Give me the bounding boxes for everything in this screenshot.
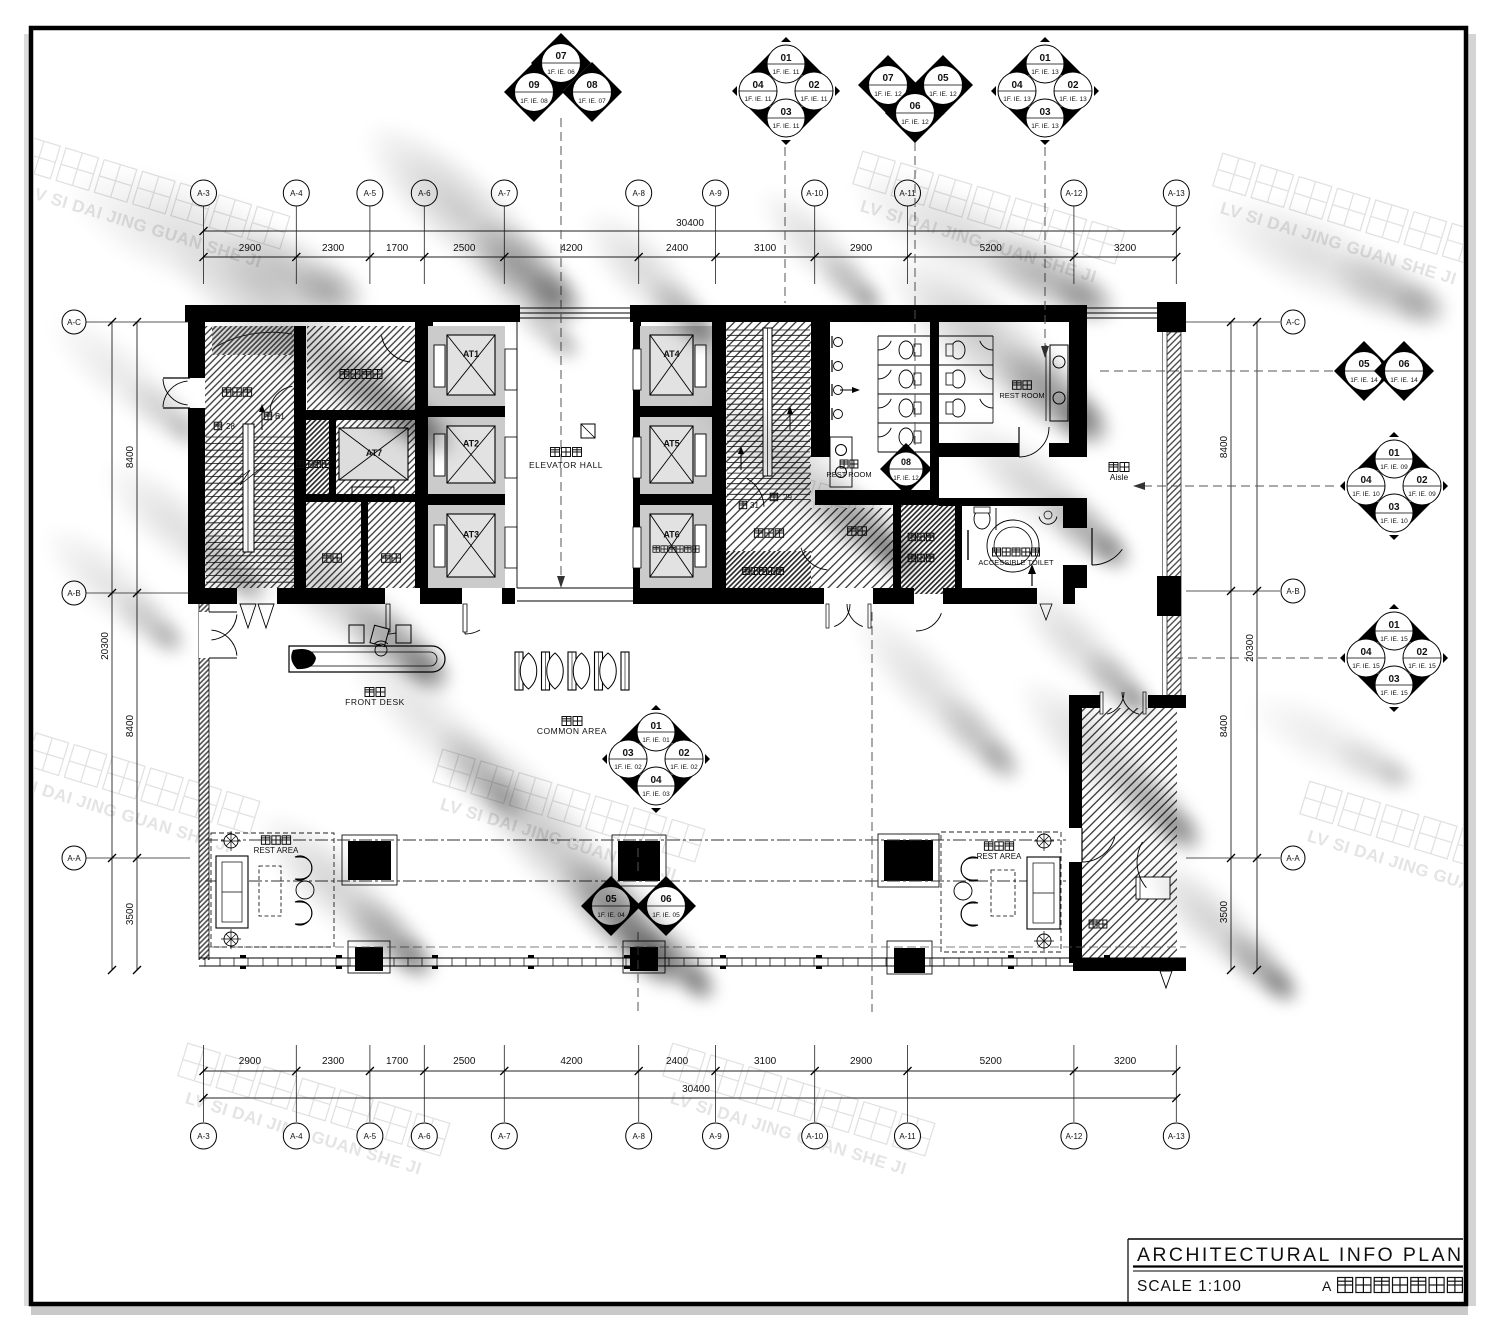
svg-text:A-11: A-11 (899, 1132, 916, 1141)
svg-text:3500: 3500 (125, 902, 136, 925)
svg-text:A-4: A-4 (290, 189, 303, 198)
svg-text:02: 02 (678, 748, 690, 759)
svg-text:8400: 8400 (1219, 435, 1230, 458)
svg-text:01: 01 (780, 53, 792, 64)
svg-text:ELEVATOR HALL: ELEVATOR HALL (529, 460, 603, 470)
svg-text:02: 02 (1067, 80, 1079, 91)
svg-text:1700: 1700 (386, 243, 409, 254)
svg-text:1F. IE. 09: 1F. IE. 09 (1380, 464, 1408, 471)
svg-text:1F. IE. 12: 1F. IE. 12 (893, 476, 919, 482)
svg-text:A-7: A-7 (498, 1132, 511, 1141)
svg-text:07: 07 (555, 51, 567, 62)
svg-text:AT6: AT6 (663, 530, 679, 540)
svg-text:2300: 2300 (322, 1056, 345, 1067)
svg-text:AT2: AT2 (463, 439, 479, 449)
svg-text:A-8: A-8 (632, 189, 645, 198)
svg-text:A-9: A-9 (709, 1132, 722, 1141)
svg-text:07: 07 (882, 73, 894, 84)
svg-text:05: 05 (1358, 359, 1370, 370)
svg-text:03: 03 (1388, 502, 1400, 513)
svg-text:3100: 3100 (754, 243, 777, 254)
svg-text:30400: 30400 (676, 218, 704, 229)
svg-text:A-5: A-5 (364, 1132, 377, 1141)
svg-text:02: 02 (808, 80, 820, 91)
svg-text:AT4: AT4 (663, 349, 679, 359)
svg-text:2500: 2500 (453, 1056, 476, 1067)
svg-text:A-A: A-A (67, 854, 81, 863)
svg-text:COMMON AREA: COMMON AREA (537, 726, 607, 736)
svg-text:3200: 3200 (1114, 1056, 1137, 1067)
svg-text:1F. IE. 11: 1F. IE. 11 (773, 69, 800, 76)
svg-text:A-3: A-3 (197, 1132, 210, 1141)
svg-text:1F. IE. 09: 1F. IE. 09 (1408, 491, 1436, 498)
svg-text:A-5: A-5 (364, 189, 377, 198)
svg-text:ACCESSIBLE TOILET: ACCESSIBLE TOILET (978, 558, 1054, 567)
svg-text:04: 04 (752, 80, 764, 91)
svg-text:A-6: A-6 (418, 1132, 431, 1141)
svg-text:08: 08 (586, 80, 598, 91)
svg-text:2900: 2900 (850, 1056, 873, 1067)
svg-text:A-4: A-4 (290, 1132, 303, 1141)
svg-text:06: 06 (909, 101, 921, 112)
svg-text:1F. IE. 02: 1F. IE. 02 (670, 764, 698, 771)
svg-text:1F. IE. 11: 1F. IE. 11 (745, 96, 772, 103)
svg-text:04: 04 (1360, 475, 1372, 486)
svg-text:1F. IE. 13: 1F. IE. 13 (1059, 96, 1087, 103)
svg-text:1F. IE. 10: 1F. IE. 10 (1352, 491, 1380, 498)
svg-text:A-B: A-B (1286, 587, 1299, 596)
svg-text:1F. IE. 01: 1F. IE. 01 (642, 737, 670, 744)
svg-text:3100: 3100 (754, 1056, 777, 1067)
svg-text:ARCHITECTURAL INFO PLAN: ARCHITECTURAL INFO PLAN (1137, 1244, 1463, 1266)
svg-text:SCALE 1:100: SCALE 1:100 (1137, 1278, 1242, 1295)
svg-text:04: 04 (1360, 647, 1372, 658)
svg-text:AT7: AT7 (366, 448, 382, 458)
svg-text:2400: 2400 (666, 1056, 689, 1067)
svg-text:1F. IE. 14: 1F. IE. 14 (1350, 377, 1378, 384)
svg-text:1F. IE. 15: 1F. IE. 15 (1380, 690, 1408, 697)
svg-text:1F. IE. 13: 1F. IE. 13 (1031, 69, 1059, 76)
svg-text:1F. IE. 12: 1F. IE. 12 (901, 119, 929, 126)
svg-text:1F. IE. 14: 1F. IE. 14 (1390, 377, 1418, 384)
svg-text:1F. IE. 12: 1F. IE. 12 (929, 91, 957, 98)
svg-text:31: 31 (750, 501, 759, 510)
svg-text:A-12: A-12 (1065, 1132, 1082, 1141)
svg-text:04: 04 (650, 775, 662, 786)
svg-text:B1: B1 (275, 412, 285, 421)
svg-text:09: 09 (528, 80, 540, 91)
svg-text:2900: 2900 (239, 1056, 262, 1067)
svg-text:03: 03 (622, 748, 634, 759)
svg-text:1F. IE. 15: 1F. IE. 15 (1380, 636, 1408, 643)
svg-text:A-10: A-10 (806, 189, 823, 198)
svg-text:8400: 8400 (1219, 714, 1230, 737)
svg-text:05: 05 (937, 73, 949, 84)
svg-text:03: 03 (780, 107, 792, 118)
svg-text:A-12: A-12 (1065, 189, 1082, 198)
svg-text:02: 02 (1416, 647, 1428, 658)
svg-text:5200: 5200 (980, 1056, 1003, 1067)
svg-text:03: 03 (1039, 107, 1051, 118)
svg-text:1F. IE. 03: 1F. IE. 03 (642, 791, 670, 798)
svg-text:08: 08 (901, 457, 911, 467)
svg-text:1F. IE. 08: 1F. IE. 08 (520, 98, 548, 105)
svg-text:1F. IE. 11: 1F. IE. 11 (801, 96, 828, 103)
svg-text:A-8: A-8 (632, 1132, 645, 1141)
svg-text:3200: 3200 (1114, 243, 1137, 254)
svg-text:Aisle: Aisle (1110, 472, 1129, 482)
svg-text:04: 04 (1011, 80, 1023, 91)
svg-text:1F. IE. 11: 1F. IE. 11 (773, 123, 800, 130)
svg-text:1F. IE. 07: 1F. IE. 07 (578, 98, 606, 105)
svg-text:1F. IE. 15: 1F. IE. 15 (1408, 663, 1436, 670)
svg-text:A-A: A-A (1286, 854, 1300, 863)
svg-text:01: 01 (1388, 620, 1400, 631)
svg-text:A: A (1322, 1278, 1332, 1294)
svg-text:01: 01 (650, 721, 662, 732)
svg-text:1F. IE. 10: 1F. IE. 10 (1380, 518, 1408, 525)
svg-text:AT3: AT3 (463, 530, 479, 540)
svg-text:03: 03 (1388, 674, 1400, 685)
svg-text:A-C: A-C (1286, 318, 1300, 327)
svg-text:1700: 1700 (386, 1056, 409, 1067)
svg-text:REST AREA: REST AREA (977, 852, 1022, 861)
svg-text:06: 06 (1398, 359, 1410, 370)
svg-text:AT5: AT5 (663, 439, 679, 449)
svg-text:A-13: A-13 (1168, 189, 1185, 198)
svg-text:AT1: AT1 (463, 349, 479, 359)
svg-text:A-9: A-9 (709, 189, 722, 198)
svg-text:28: 28 (226, 422, 235, 431)
svg-text:01: 01 (1039, 53, 1051, 64)
svg-text:1F. IE. 06: 1F. IE. 06 (547, 69, 575, 76)
svg-text:1F. IE. 02: 1F. IE. 02 (614, 764, 642, 771)
svg-text:4200: 4200 (560, 243, 583, 254)
svg-text:4200: 4200 (560, 1056, 583, 1067)
svg-text:20300: 20300 (100, 632, 111, 660)
svg-text:01: 01 (1388, 448, 1400, 459)
svg-text:30400: 30400 (682, 1084, 710, 1095)
svg-text:8400: 8400 (125, 714, 136, 737)
svg-text:A-10: A-10 (806, 1132, 823, 1141)
svg-text:02: 02 (1416, 475, 1428, 486)
svg-text:1F. IE. 13: 1F. IE. 13 (1003, 96, 1031, 103)
svg-text:1F. IE. 12: 1F. IE. 12 (874, 91, 902, 98)
svg-text:1F. IE. 13: 1F. IE. 13 (1031, 123, 1059, 130)
svg-text:1F. IE. 15: 1F. IE. 15 (1352, 663, 1380, 670)
svg-text:A-13: A-13 (1168, 1132, 1185, 1141)
